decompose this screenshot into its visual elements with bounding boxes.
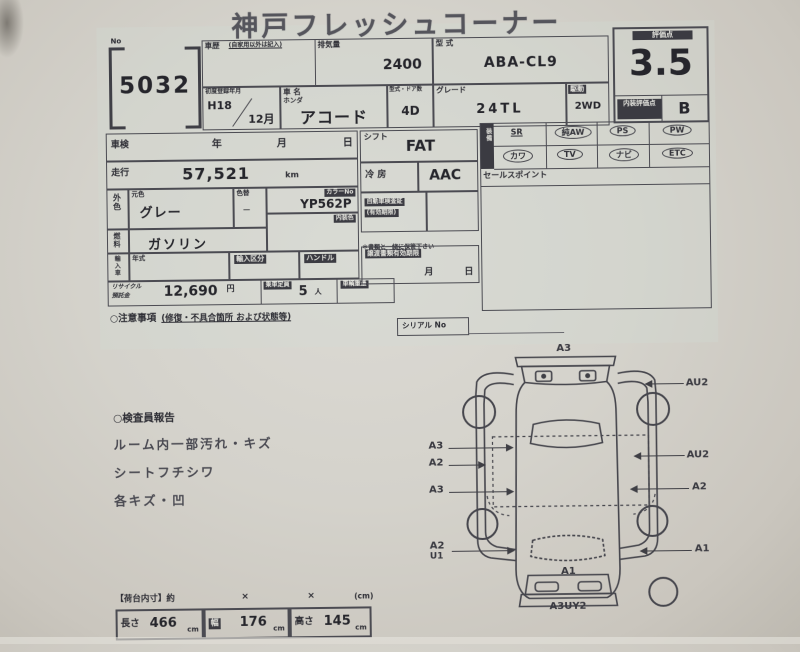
recycle-yen: 円 — [227, 285, 235, 294]
doc-label-1: 自動車検査証 — [364, 198, 404, 207]
dims-length-unit: cm — [187, 627, 199, 635]
mileage-value: 57,521 — [182, 164, 250, 184]
equipment-navi: ナビ — [609, 148, 639, 161]
first-registration-cell: 初度登録年月 H18 12月 — [202, 86, 281, 130]
inspector-line-3: 各キズ・凹 — [114, 488, 273, 509]
damage-label-trunk: A1 — [561, 566, 576, 577]
import-label: 輸入車 — [112, 255, 121, 276]
dims-x1: × — [241, 593, 249, 603]
history-label: 車歴 — [205, 42, 220, 50]
lot-number: 5032 — [109, 72, 201, 99]
equipment-aw: 純AW — [555, 126, 592, 139]
color-change-value: ー — [243, 205, 251, 216]
lot-number-box: No 5032 — [109, 46, 202, 129]
transfer-cell: 譲渡書類有効期限 月 日 — [361, 245, 479, 284]
doc-cell: 自動車検査証 (有効期限) — [360, 192, 426, 233]
rating-interior-grade: B — [661, 98, 707, 118]
model-code-value: ABA-CL9 — [434, 53, 608, 71]
import-year-cell: 年式 — [129, 252, 229, 281]
damage-label-right-1: AU2 — [686, 377, 709, 388]
dims-width-value: 176 — [240, 615, 267, 630]
ext-color-header: 外色 — [106, 189, 128, 229]
sales-point-label: セールスポイント — [483, 171, 547, 181]
dims-length-cell: 長さ 466 cm — [115, 608, 203, 640]
color-change-cell: 色替 ー — [233, 188, 266, 228]
interior-color-label: 内装色 — [334, 215, 356, 223]
doc-label-2: (有効期限) — [365, 209, 399, 218]
dims-title: 【荷台内寸】約 — [115, 595, 175, 605]
transfer-month: 月 — [424, 269, 433, 279]
history-note: (自家用以外は記入) — [229, 42, 283, 49]
sales-point-line — [481, 183, 709, 187]
shaken-year: 年 — [212, 139, 222, 150]
damage-label-left-1: A3 — [428, 440, 443, 451]
damage-label-rear-bumper: A3UY2 — [549, 601, 586, 612]
handle-label: ハンドル — [304, 254, 336, 264]
first-registration-year: H18 — [207, 99, 232, 112]
displacement-value: 2400 — [383, 57, 422, 73]
color-no-cell: カラーNo YP562P — [266, 186, 358, 213]
fuel-label: 燃料 — [112, 232, 122, 248]
rating-score-label: 評価点 — [632, 30, 692, 40]
fuel-header: 燃料 — [107, 229, 129, 253]
car-name-value: アコード — [281, 103, 386, 128]
displacement-cell: 排気量 2400 — [315, 38, 434, 86]
base-color-cell: 元色 グレー — [128, 188, 233, 229]
damage-label-left-3: A3 — [429, 484, 444, 495]
shift-cell: シフト FAT — [360, 129, 478, 162]
rating-box: 評価点 3.5 内装評価点 B — [612, 26, 709, 123]
doc-blank-cell — [426, 191, 478, 232]
recycle-divider-1 — [260, 281, 261, 304]
damage-label-left-4b: U1 — [430, 551, 444, 561]
equipment-label: 装備 — [484, 128, 493, 142]
lot-label: No — [111, 38, 122, 46]
mileage-label: 走行 — [111, 169, 129, 179]
auction-sheet: 神戸フレッシュコーナー No 5032 車歴 (自家用以外は記入) 排気量 24… — [0, 0, 800, 649]
shaken-month: 月 — [277, 138, 287, 149]
model-code-label: 型 式 — [436, 39, 454, 47]
transfer-label: 譲渡書類有効期限 — [365, 249, 421, 258]
first-registration-month: 12月 — [248, 111, 275, 127]
damage-label-right-4: A1 — [695, 543, 710, 554]
interior-color-cell: 内装色 — [267, 212, 359, 251]
recycle-divider-2 — [336, 280, 337, 303]
dims-height-unit: cm — [355, 625, 367, 633]
serial-label: シリアル No — [402, 321, 446, 330]
transfer-day: 日 — [464, 268, 473, 278]
dims-width-label: 幅 — [209, 618, 221, 629]
dims-length-label: 長さ — [121, 619, 140, 630]
base-color-label: 元色 — [131, 191, 144, 198]
color-change-label: 色替 — [236, 190, 249, 197]
capacity-label: 乗車定員 — [263, 281, 291, 289]
damage-label-left-4a: A2 — [430, 540, 445, 551]
shift-label: シフト — [364, 133, 388, 142]
rating-interior-label: 内装評価点 — [617, 99, 661, 120]
capacity-value: 5 — [299, 284, 308, 299]
dims-length-value: 466 — [150, 616, 177, 631]
rating-score: 3.5 — [615, 42, 707, 84]
dims-height-label: 高さ — [295, 617, 314, 628]
dims-height-value: 145 — [324, 614, 351, 629]
color-no-value: YP562P — [300, 197, 351, 212]
car-name-cell: 車 名 ホンダ アコード — [280, 85, 388, 129]
dims-width-cell: 幅 176 cm — [203, 607, 289, 639]
base-color-value: グレー — [140, 202, 182, 222]
equipment-header: 装備 — [481, 124, 495, 169]
equipment-pw: PW — [663, 124, 692, 135]
equipment-leather: カワ — [503, 149, 533, 162]
fuel-value: ガソリン — [148, 233, 208, 253]
drive-label: 駆動 — [568, 85, 586, 95]
ac-value-cell: AAC — [418, 161, 478, 192]
equipment-ps: PS — [610, 125, 636, 136]
shaken-row: 車検 年 月 日 — [106, 131, 358, 162]
displacement-label: 排気量 — [318, 41, 341, 50]
recycle-label-1: リサイクル — [112, 284, 142, 291]
fuel-cell: ガソリン — [129, 228, 267, 254]
grade-value: 24TL — [434, 101, 565, 118]
handle-cell: ハンドル — [299, 250, 359, 279]
damage-diagram: A3 A3 A2 A3 A2 U1 AU2 AU2 A2 A1 A1 A3UY2 — [425, 341, 729, 643]
capacity-unit: 人 — [315, 289, 322, 297]
equipment-tv: TV — [557, 149, 583, 160]
equipment-sr: SR — [511, 128, 523, 137]
inspector-line-1: ルーム内一部汚れ・キズ — [113, 432, 272, 453]
damage-label-left-2: A2 — [429, 457, 444, 468]
inspector-line-2: シートフチシワ — [114, 460, 273, 481]
photo-bottom-strip — [0, 637, 800, 644]
drive-cell: 駆動 2WD — [566, 82, 610, 126]
grade-label: グレード — [436, 86, 466, 95]
damage-label-front: A3 — [556, 343, 571, 354]
dims-width-unit: cm — [273, 626, 285, 634]
notes-label: ○注意事項 — [110, 313, 156, 325]
ext-color-label: 外色 — [111, 193, 122, 211]
import-year-label: 年式 — [132, 255, 145, 262]
import-type-label: 輸入区分 — [234, 255, 266, 265]
mileage-unit: km — [285, 171, 299, 180]
history-cell: 車歴 (自家用以外は記入) — [202, 39, 317, 87]
grade-cell: グレード 24TL — [433, 83, 567, 128]
doors-label: 型式・ドア数 — [389, 87, 422, 93]
car-outline-svg — [425, 341, 729, 643]
ac-value: AAC — [429, 167, 461, 183]
drive-value: 2WD — [567, 100, 608, 112]
equipment-mid-line — [494, 143, 709, 147]
serial-box: シリアル No — [397, 317, 469, 336]
damage-label-right-3: A2 — [692, 481, 707, 492]
import-type-cell: 輸入区分 — [229, 251, 299, 280]
dims-height-cell: 高さ 145 cm — [289, 606, 371, 638]
ac-label-cell: 冷 房 — [360, 162, 418, 193]
shaken-day: 日 — [343, 138, 353, 149]
inspector-title: ○検査員報告 — [113, 412, 272, 425]
inspector-report: ○検査員報告 ルーム内一部汚れ・キズ シートフチシワ 各キズ・凹 — [113, 412, 273, 509]
recycle-row: リサイクル 預託金 12,690 円 乗車定員 5 人 車輌重量 — [107, 278, 394, 307]
doors-cell: 型式・ドア数 4D — [387, 85, 434, 129]
import-header: 輸入車 — [107, 253, 129, 281]
mileage-row: 走行 57,521 km — [106, 159, 358, 190]
damage-label-right-2: AU2 — [687, 449, 710, 460]
equipment-bottom-line — [494, 166, 709, 170]
dims-cm-note: (cm) — [354, 592, 373, 600]
shaken-label: 車検 — [111, 141, 129, 151]
ac-label: 冷 房 — [365, 171, 386, 181]
recycle-label-2: 預託金 — [112, 293, 130, 300]
equipment-etc: ETC — [662, 147, 693, 158]
shift-value: FAT — [406, 137, 435, 155]
doors-value: 4D — [388, 104, 432, 119]
notes-note: (修復・不具合箇所 および状態等) — [161, 312, 291, 324]
dims-x2: × — [307, 592, 315, 602]
right-column-box: 装備 SR 純AW PS PW カワ TV ナビ ETC セールスポイント — [480, 120, 712, 311]
recycle-fee: 12,690 — [164, 283, 218, 300]
first-registration-label: 初度登録年月 — [205, 89, 241, 96]
model-code-cell: 型 式 ABA-CL9 — [433, 35, 610, 84]
